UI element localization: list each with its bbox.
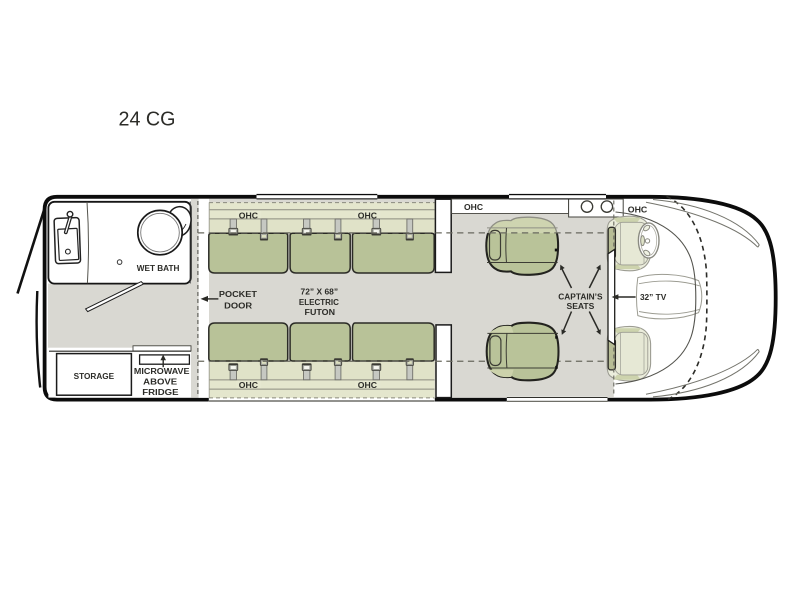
svg-text:OHC: OHC bbox=[239, 380, 258, 390]
svg-text:FRIDGE: FRIDGE bbox=[142, 387, 179, 397]
svg-text:FUTON: FUTON bbox=[305, 307, 336, 317]
svg-text:24 CG: 24 CG bbox=[119, 108, 176, 131]
svg-text:OHC: OHC bbox=[628, 204, 648, 214]
svg-text:DOOR: DOOR bbox=[224, 301, 253, 311]
svg-text:ELECTRIC: ELECTRIC bbox=[299, 297, 339, 307]
svg-text:OHC: OHC bbox=[464, 202, 483, 212]
svg-text:OHC: OHC bbox=[239, 210, 258, 220]
svg-text:MICROWAVE: MICROWAVE bbox=[134, 366, 190, 376]
svg-text:POCKET: POCKET bbox=[219, 289, 258, 299]
svg-text:32” TV: 32” TV bbox=[640, 292, 667, 302]
svg-text:OHC: OHC bbox=[358, 210, 377, 220]
svg-text:ABOVE: ABOVE bbox=[143, 377, 177, 387]
svg-text:CAPTAIN’S: CAPTAIN’S bbox=[558, 291, 603, 301]
svg-text:WET BATH: WET BATH bbox=[137, 263, 180, 273]
svg-text:OHC: OHC bbox=[358, 380, 377, 390]
svg-text:72” X 68”: 72” X 68” bbox=[301, 287, 339, 297]
svg-text:STORAGE: STORAGE bbox=[74, 371, 115, 381]
svg-text:SEATS: SEATS bbox=[567, 301, 595, 311]
